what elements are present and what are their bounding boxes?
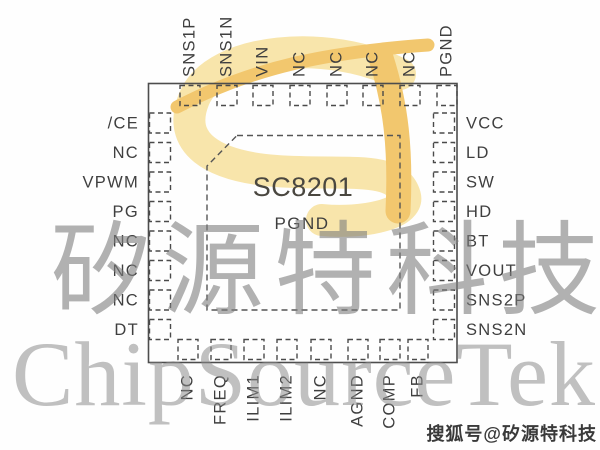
pin-label-ilim2: ILIM2 [278,374,296,422]
pin-pad-top-2 [217,86,237,106]
pin-label-pg: PG [113,203,139,221]
pin-label-nc: NC [113,144,139,162]
pin-pad-top-5 [327,86,347,106]
pin-label-sns1p: SNS1P [181,16,199,77]
chip-name: SC8201 [253,172,354,202]
pin-label-freq: FREQ [212,374,230,425]
pin-label-comp: COMP [381,374,399,429]
pin-pad-left-2 [150,143,171,163]
pin-pad-top-1 [180,86,200,106]
pin-label-vout: VOUT [466,262,517,280]
pin-label-sns2p: SNS2P [466,292,527,310]
pin-label-ld: LD [466,144,490,162]
pin-pad-right-4 [434,202,455,222]
pin-label-hd: HD [466,203,492,221]
pin-pad-left-7 [150,290,171,310]
pin-label-fb: FB [409,374,427,398]
sohu-account-badge: 搜狐号@矽源特科技 [426,420,597,446]
pin-label-dt: DT [114,321,139,339]
pin-pad-left-3 [150,172,171,192]
pin-pad-bottom-3 [244,340,264,360]
pin-pad-top-8 [437,86,457,106]
pin-label-nc: NC [401,51,419,77]
pin-label-vpwm: VPWM [82,174,139,192]
pin-pad-top-4 [290,86,310,106]
pin-pad-bottom-6 [348,340,368,360]
pin-label-ce: /CE [108,115,139,133]
pin-pad-bottom-7 [380,340,400,360]
pin-pad-right-6 [434,261,455,281]
pin-label-nc: NC [113,233,139,251]
pin-label-nc: NC [113,262,139,280]
pin-pad-top-6 [363,86,383,106]
pin-pad-right-3 [434,172,455,192]
pin-pad-bottom-8 [408,340,428,360]
pin-label-nc: NC [179,374,197,400]
pin-pad-bottom-5 [311,340,331,360]
pin-label-nc: NC [364,51,382,77]
pin-pad-right-7 [434,290,455,310]
pin-label-vin: VIN [254,46,272,77]
pin-label-nc: NC [291,51,309,77]
pin-label-sns2n: SNS2N [466,321,528,339]
pin-pad-bottom-4 [277,340,297,360]
pin-label-sw: SW [466,174,495,192]
pin-pad-bottom-1 [178,340,198,360]
pin-label-nc: NC [312,374,330,400]
pin-pad-right-5 [434,231,455,251]
pin-label-nc: NC [328,51,346,77]
pin-pad-bottom-2 [211,340,231,360]
chip-diagram: SNS1P SNS1N VIN NC NC NC NC PGND NC FREQ… [0,0,600,450]
pin-pad-left-5 [150,231,171,251]
pin-pad-left-8 [150,320,171,340]
pin-pad-top-3 [253,86,273,106]
pin-label-nc: NC [113,292,139,310]
pin-label-pgnd: PGND [438,24,456,77]
pin-pad-right-8 [434,320,455,340]
exposed-pad-label: PGND [274,214,329,233]
pin-pad-left-6 [150,261,171,281]
pin-label-bt: BT [466,233,490,251]
pin-pad-left-4 [150,202,171,222]
pin-pad-top-7 [400,86,420,106]
pin-label-vcc: VCC [466,115,505,133]
pin-label-sns1n: SNS1N [218,15,236,77]
pin-pad-right-1 [434,113,455,133]
pin-pad-right-2 [434,143,455,163]
pinout-diagram: SNS1P SNS1N VIN NC NC NC NC PGND NC FREQ… [0,0,600,450]
pin-pad-left-1 [150,113,171,133]
pin-label-agnd: AGND [349,374,367,427]
pin-label-ilim1: ILIM1 [245,374,263,422]
